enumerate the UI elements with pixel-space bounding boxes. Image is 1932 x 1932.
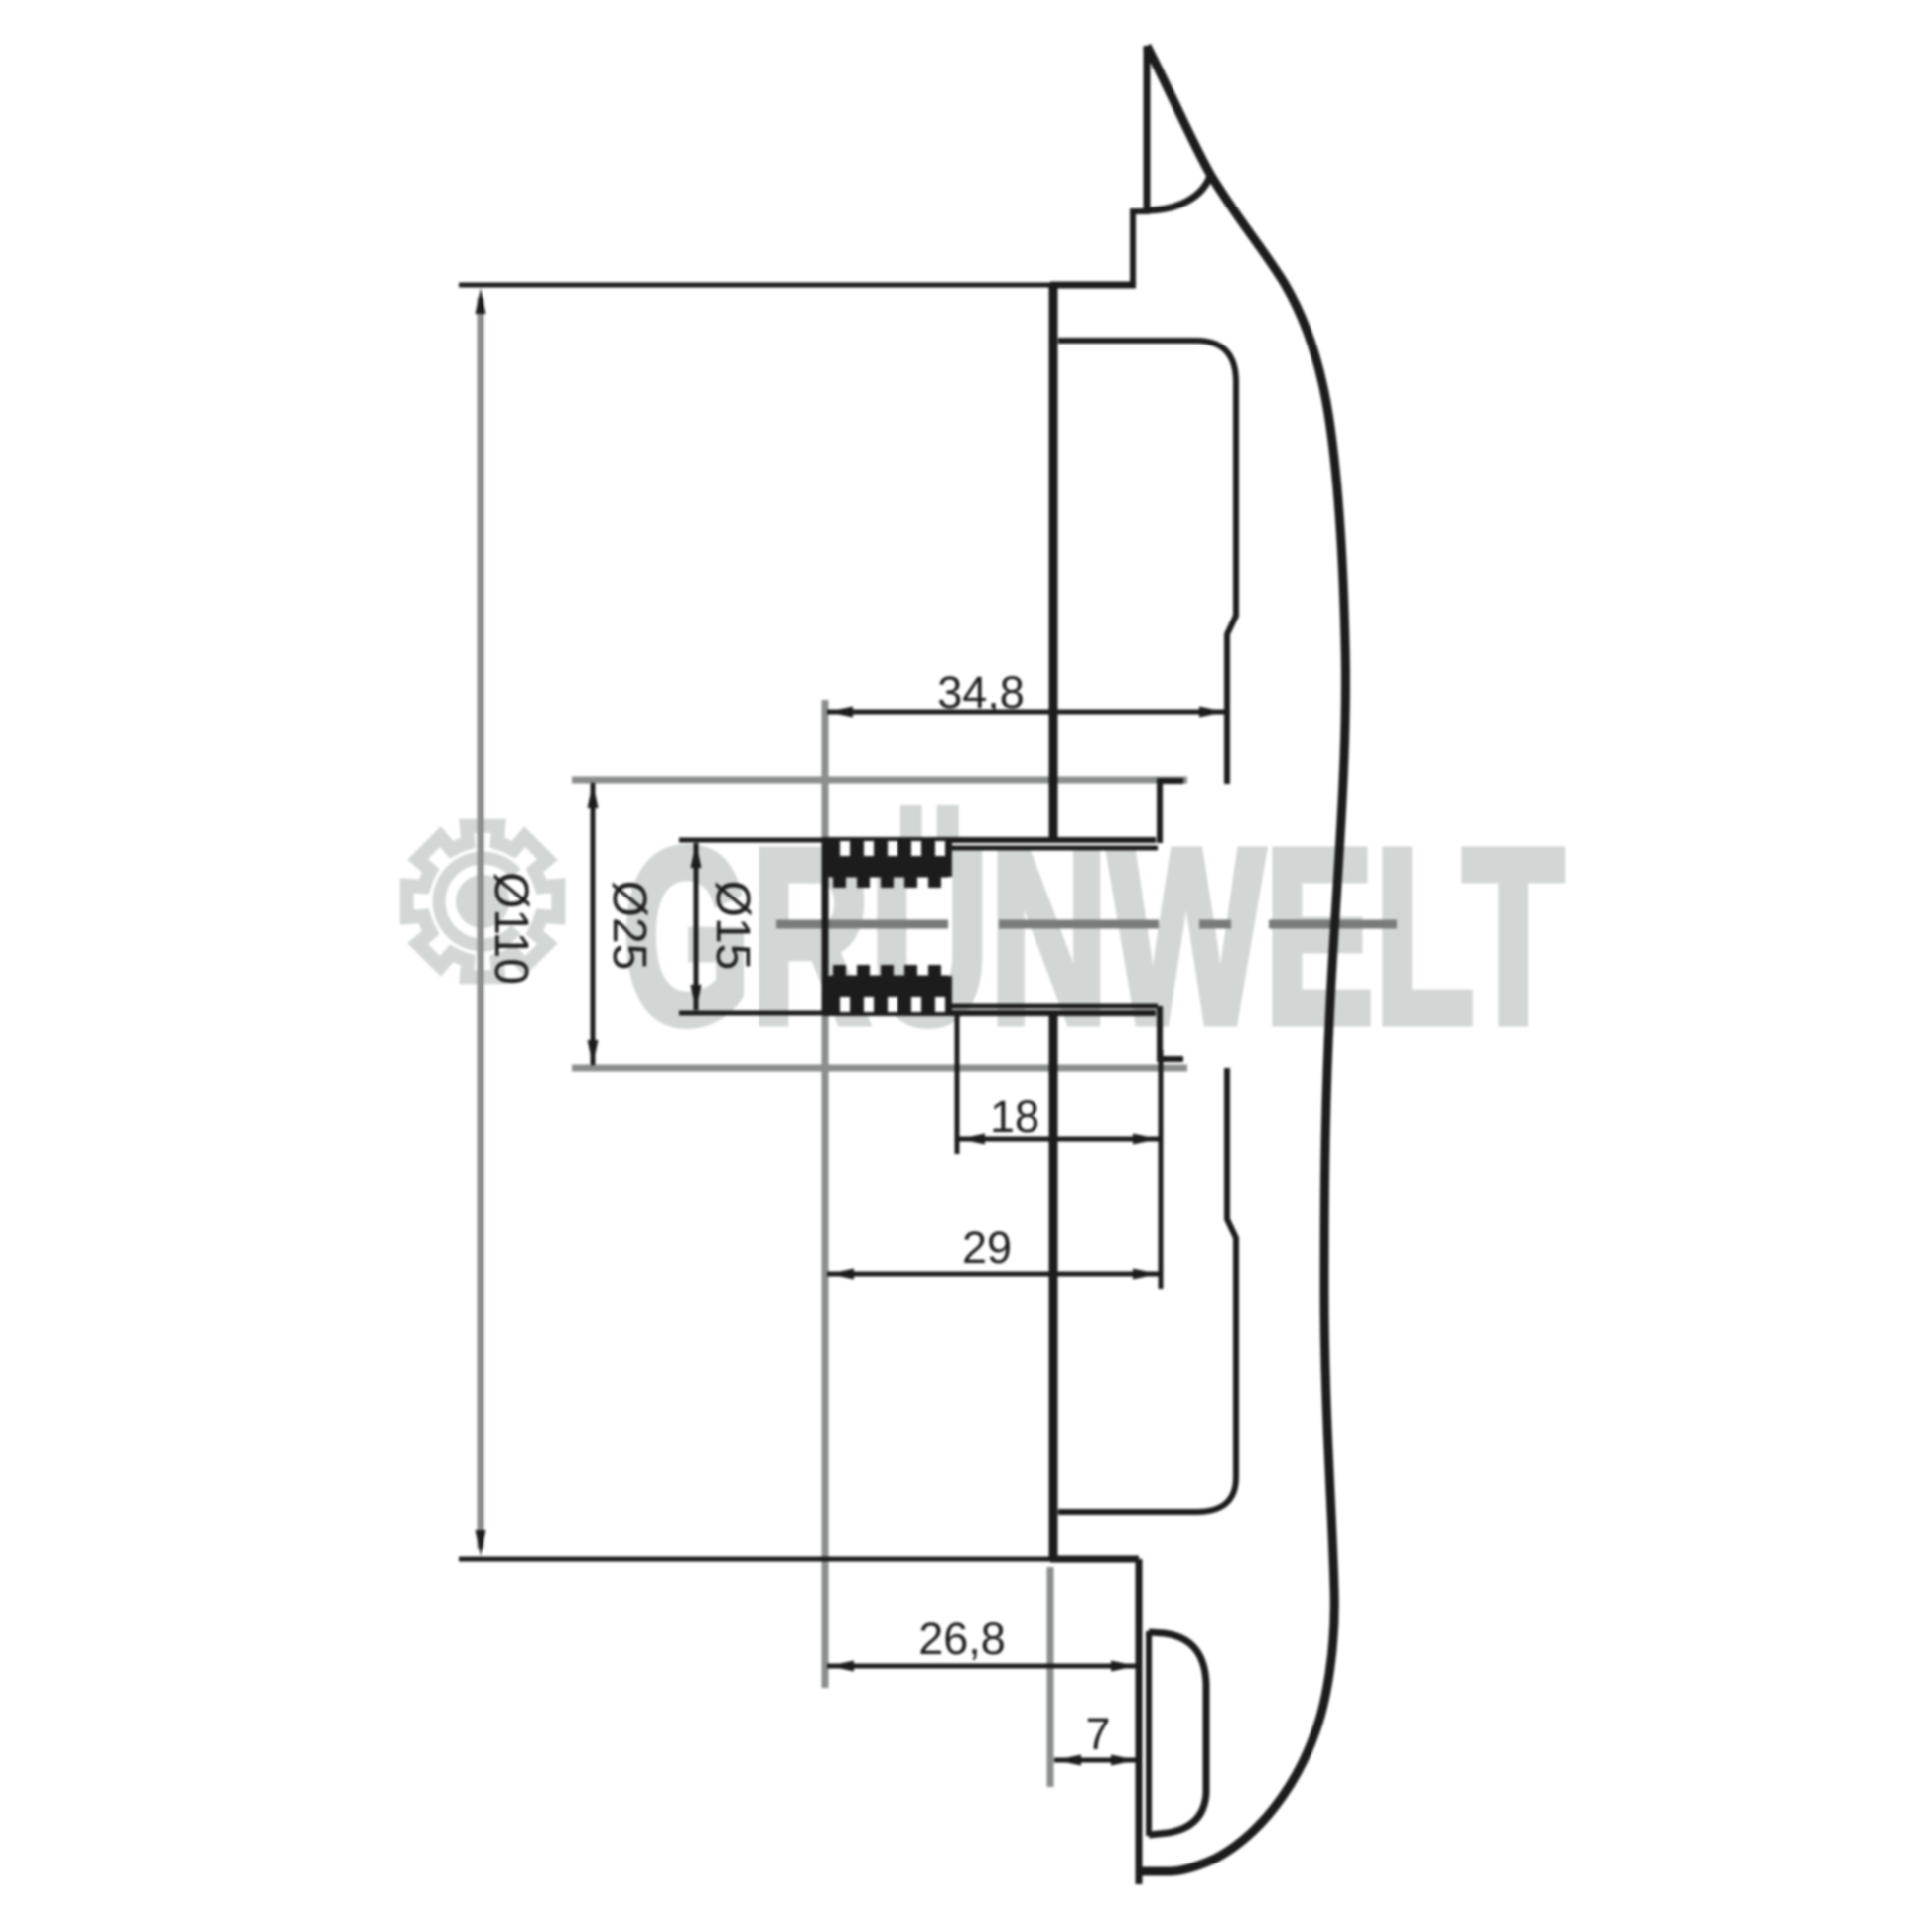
- svg-text:7: 7: [1085, 1709, 1110, 1759]
- svg-text:18: 18: [990, 1091, 1039, 1142]
- svg-text:Ø110: Ø110: [484, 872, 537, 985]
- svg-text:Ø15: Ø15: [706, 881, 759, 971]
- svg-text:26,8: 26,8: [918, 1613, 1006, 1664]
- svg-text:34,8: 34,8: [937, 667, 1025, 718]
- svg-text:Ø25: Ø25: [603, 881, 655, 971]
- svg-text:29: 29: [962, 1222, 1012, 1273]
